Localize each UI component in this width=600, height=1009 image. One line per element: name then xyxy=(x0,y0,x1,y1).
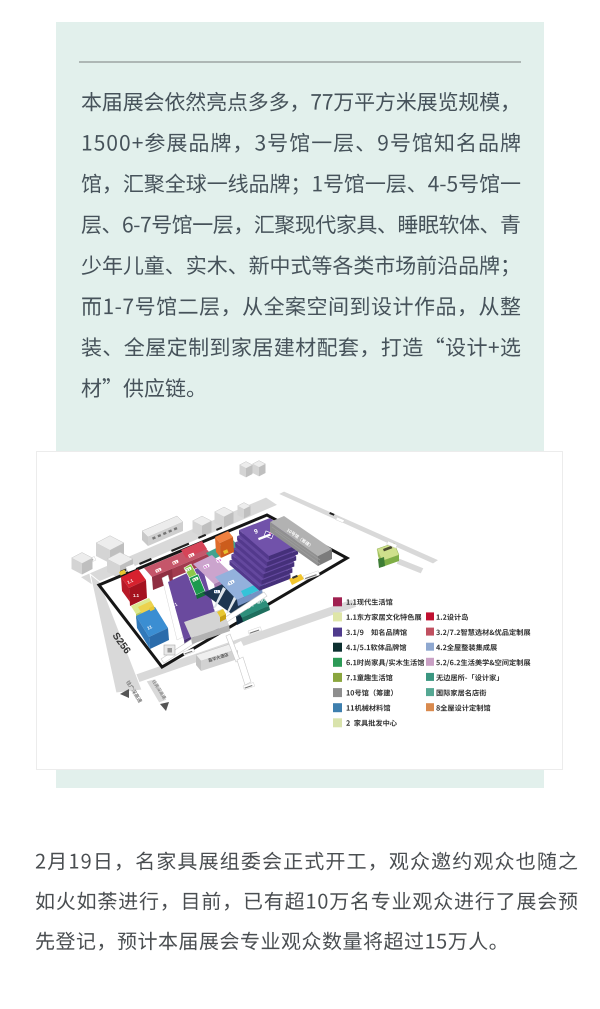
svg-text:1.1: 1.1 xyxy=(133,593,140,598)
svg-text:4.1: 4.1 xyxy=(215,590,219,594)
